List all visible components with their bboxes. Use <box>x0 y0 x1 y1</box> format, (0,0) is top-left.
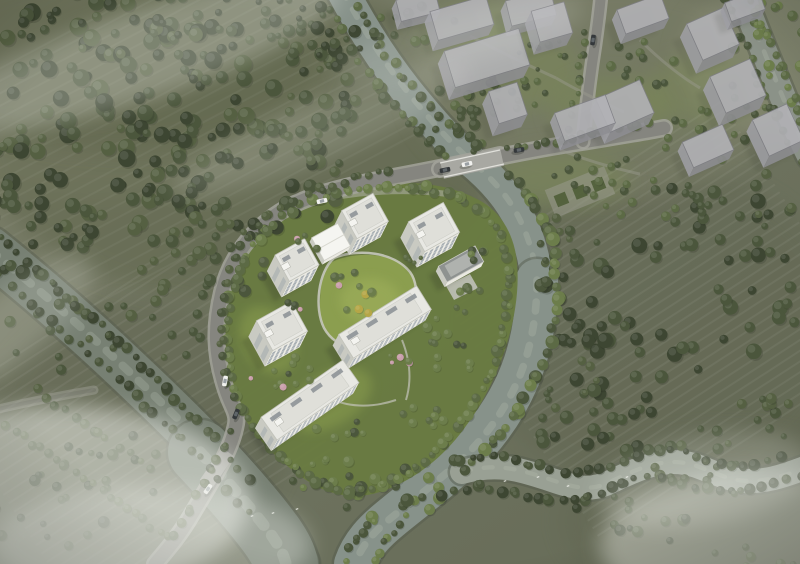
site-aerial-rendering <box>0 0 800 564</box>
vignette <box>0 0 800 564</box>
atmosphere-layer <box>0 0 800 564</box>
scene-canvas <box>0 0 800 564</box>
